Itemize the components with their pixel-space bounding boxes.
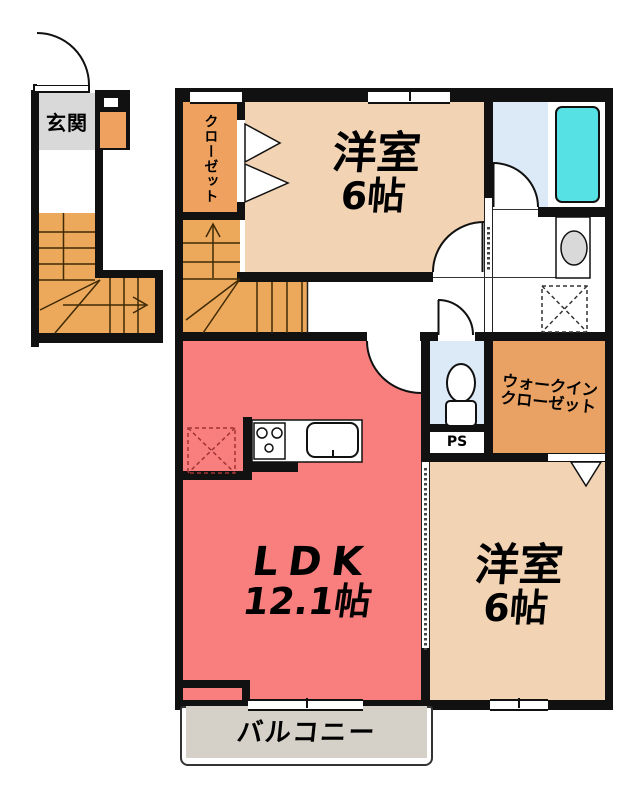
wall	[31, 90, 39, 347]
wall	[183, 332, 367, 341]
label-closet: クローゼット	[186, 108, 234, 210]
room-toilet	[430, 341, 484, 424]
kitchen-wall	[183, 471, 252, 480]
wall	[484, 341, 493, 453]
room-bathroom-floor	[493, 102, 548, 207]
wall	[183, 212, 245, 220]
wall	[475, 332, 605, 341]
stairs-2f	[183, 220, 240, 333]
wall	[237, 272, 433, 282]
label-walk-in-closet: ウォークイン クローゼット	[492, 358, 606, 433]
wall	[31, 333, 163, 343]
label-entrance: 玄関	[39, 111, 95, 135]
window-closet	[190, 90, 242, 104]
entrance-door-swing	[37, 33, 89, 85]
wall	[538, 207, 605, 217]
room-size: 6帖	[339, 177, 407, 217]
bathtub-deck	[548, 102, 605, 207]
closet-door-opening	[237, 120, 245, 202]
wall	[103, 270, 163, 278]
room-name: 洋室	[331, 131, 423, 177]
wall	[95, 148, 103, 278]
label-balcony: バルコニー	[184, 716, 429, 752]
wall	[421, 648, 430, 700]
stairs-1f-lower-flight	[95, 278, 155, 333]
floorplan: 玄関 クローゼット 洋室 6帖 ウォークイン クローゼット PS LDK 12.…	[0, 0, 644, 800]
wall	[421, 341, 430, 462]
wall	[421, 453, 548, 462]
label-pipe-space: PS	[430, 431, 484, 453]
room-name: LDK	[250, 541, 376, 583]
stairs-2f-lower-flight	[240, 282, 307, 333]
meter-box	[101, 95, 121, 110]
label-bedroom-right: 洋室 6帖	[425, 530, 610, 642]
washroom-sliding-door-track	[484, 198, 493, 332]
window-bedroom-top	[368, 90, 450, 104]
room-size: 12.1帖	[240, 583, 374, 622]
kitchen-wall	[248, 462, 298, 472]
wall	[420, 332, 438, 341]
wall	[484, 102, 493, 198]
room-size: 6帖	[482, 589, 550, 629]
window-bedroom-right	[490, 699, 548, 711]
label-bedroom-top: 洋室 6帖	[280, 118, 470, 230]
window-balcony	[248, 699, 363, 711]
stairs-1f	[39, 213, 95, 333]
walk-in-closet-door-opening	[548, 453, 605, 462]
wall	[183, 680, 250, 688]
entrance-door-leaf	[33, 84, 90, 93]
room-ldk	[183, 341, 421, 700]
label-ldk: LDK 12.1帖	[198, 533, 421, 629]
room-name: 洋室	[473, 543, 565, 589]
shoe-cabinet	[100, 112, 126, 148]
